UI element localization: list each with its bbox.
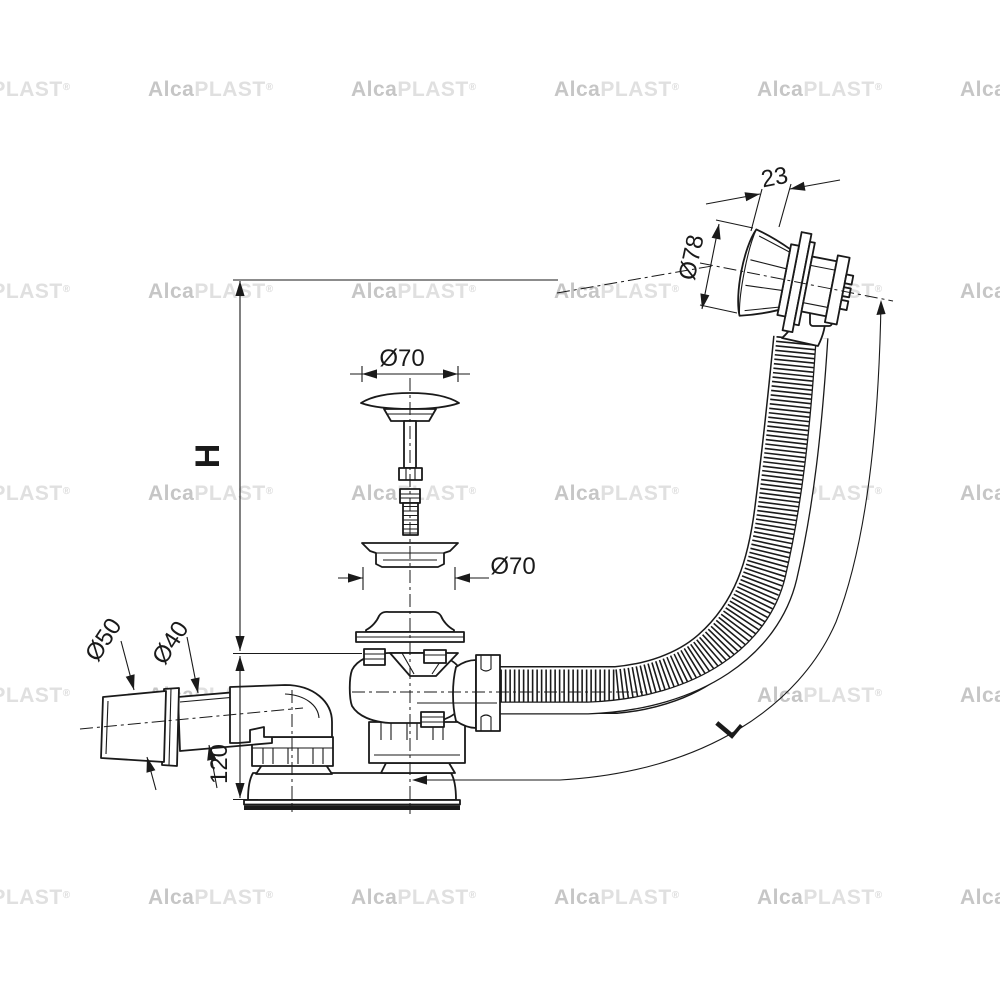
flexible-hose <box>496 338 822 708</box>
dim-seal-70-label: Ø70 <box>490 553 535 580</box>
dim-L-label: L <box>709 707 749 745</box>
trap-body <box>101 649 500 810</box>
dimension-23: 23 <box>706 162 840 231</box>
dim-23-label: 23 <box>759 162 790 194</box>
dim-78-label: Ø78 <box>674 232 710 282</box>
overflow-head <box>732 222 860 346</box>
hose-corrugation-ribs <box>497 338 797 690</box>
tee-socket <box>453 660 476 728</box>
dimension-plug-70: Ø70 <box>350 345 470 382</box>
dim-40-label: Ø40 <box>147 617 194 670</box>
drawing-canvas: H 120 Ø70 Ø70 Ø50 <box>0 0 1000 1000</box>
dim-50-label: Ø50 <box>80 614 127 667</box>
technical-drawing: AlcaPLAST®AlcaPLAST®AlcaPLAST®AlcaPLAST®… <box>0 0 1000 1000</box>
dimension-H: H <box>189 280 558 651</box>
dim-H-label: H <box>189 444 227 469</box>
trap-base-edge <box>244 806 460 811</box>
dim-plug-70-label: Ø70 <box>379 345 424 372</box>
hose-nut <box>476 655 500 731</box>
outlet-elbow <box>230 685 332 743</box>
drain-skirt <box>381 763 455 773</box>
trap-base-plate <box>244 800 460 805</box>
